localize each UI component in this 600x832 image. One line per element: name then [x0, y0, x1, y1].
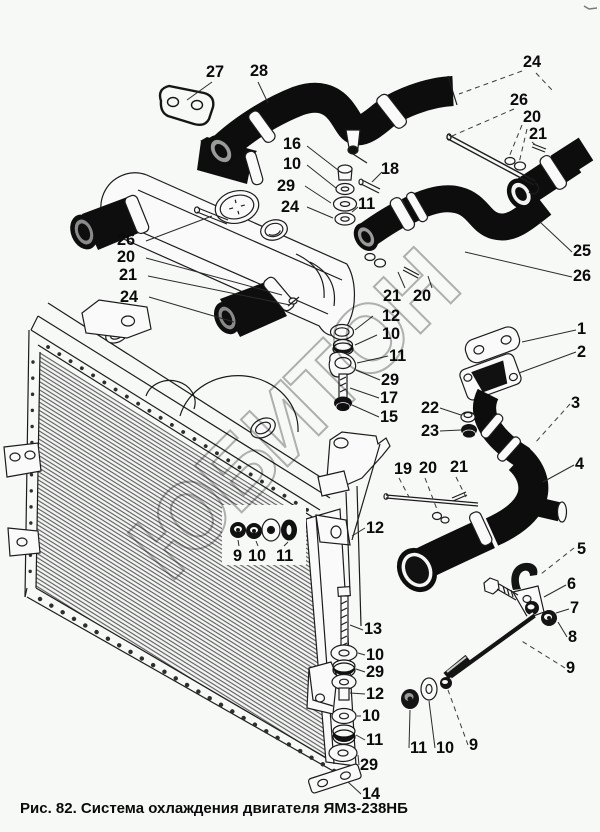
svg-text:2: 2	[577, 343, 586, 361]
svg-text:9: 9	[566, 659, 575, 677]
svg-text:7: 7	[570, 599, 579, 617]
svg-text:Рис. 82. Система охлаждения дв: Рис. 82. Система охлаждения двигателя ЯМ…	[20, 800, 408, 817]
svg-text:29: 29	[277, 177, 295, 195]
svg-text:11: 11	[410, 739, 427, 757]
svg-text:24: 24	[281, 198, 299, 216]
svg-text:9: 9	[233, 547, 242, 565]
svg-text:24: 24	[523, 53, 541, 71]
svg-text:10: 10	[283, 155, 301, 173]
svg-text:11: 11	[366, 731, 383, 749]
svg-text:28: 28	[250, 62, 268, 80]
svg-text:11: 11	[358, 195, 375, 213]
svg-text:26: 26	[510, 91, 528, 109]
svg-text:6: 6	[567, 575, 576, 593]
svg-text:1: 1	[577, 320, 586, 338]
svg-text:12: 12	[366, 519, 384, 537]
svg-text:5: 5	[577, 540, 586, 558]
svg-text:8: 8	[568, 628, 577, 646]
svg-text:29: 29	[366, 663, 384, 681]
svg-text:26: 26	[573, 267, 591, 285]
svg-text:20: 20	[523, 108, 541, 126]
svg-text:4: 4	[575, 455, 584, 473]
svg-text:23: 23	[421, 422, 439, 440]
svg-text:19: 19	[394, 460, 412, 478]
svg-text:9: 9	[469, 736, 478, 754]
svg-text:20: 20	[117, 248, 135, 266]
svg-text:18: 18	[381, 160, 399, 178]
svg-text:3: 3	[571, 394, 580, 412]
svg-text:21: 21	[529, 125, 547, 143]
svg-text:10: 10	[248, 547, 266, 565]
svg-text:29: 29	[360, 756, 378, 774]
svg-text:13: 13	[364, 620, 382, 638]
svg-text:21: 21	[119, 266, 137, 284]
svg-text:16: 16	[283, 135, 301, 153]
svg-text:24: 24	[120, 288, 138, 306]
svg-text:25: 25	[573, 242, 591, 260]
svg-text:21: 21	[450, 458, 468, 476]
svg-text:10: 10	[436, 739, 454, 757]
svg-text:15: 15	[380, 408, 398, 426]
svg-text:22: 22	[421, 399, 439, 417]
svg-text:10: 10	[362, 707, 380, 725]
svg-text:11: 11	[276, 547, 293, 565]
svg-text:20: 20	[419, 459, 437, 477]
svg-text:26: 26	[117, 231, 135, 249]
svg-text:27: 27	[206, 63, 224, 81]
svg-text:12: 12	[366, 685, 384, 703]
svg-text:10: 10	[366, 646, 384, 664]
